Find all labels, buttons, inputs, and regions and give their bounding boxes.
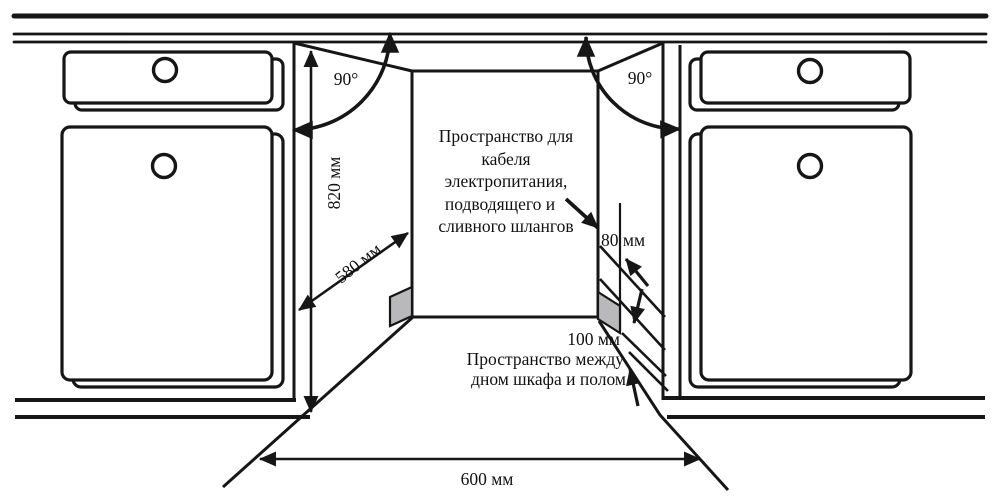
width-label-600: 600 мм [461,469,514,489]
floor-space-note-line1: Пространство между [467,349,625,369]
cable-gap-label-80: 80 мм [601,230,645,250]
cable-space-note-line1: Пространство для [439,126,573,146]
left-cabinet [62,52,283,387]
depth-label-580: 580 мм [331,239,385,288]
right-door-knob [799,155,822,178]
right-cabinet [690,52,911,387]
countertop [14,16,986,42]
right-wall-top-edge [598,43,663,71]
height-label-820: 820 мм [324,157,344,210]
cable-space-note-line4: подводящего и [445,194,555,214]
left-door-knob [153,155,176,178]
floor-space-note-line2: дном шкафа и полом [471,369,626,389]
floor-space-note: Пространство между дном шкафа и полом [467,349,626,389]
installation-diagram: 90° 90° 820 мм 580 мм 600 мм 80 мм 100 м… [0,0,1000,503]
cable-space-note-line3: электропитания, [445,171,568,191]
labels: 90° 90° 820 мм 580 мм 600 мм 80 мм 100 м… [324,68,652,489]
cable-space-note-line2: кабеля [481,149,530,169]
floor-gap-label-100: 100 мм [567,329,620,349]
angle-label-right: 90° [628,68,653,88]
left-drawer-knob [154,59,177,82]
angle-label-left: 90° [334,69,359,89]
cable-space-note: Пространство для кабеля электропитания, … [438,126,573,236]
cable-gap-arrow-upper [626,259,648,286]
right-drawer-knob [799,60,822,83]
cable-space-note-line5: сливного шлангов [438,216,573,236]
cable-gap-arrow-lower [634,289,642,323]
